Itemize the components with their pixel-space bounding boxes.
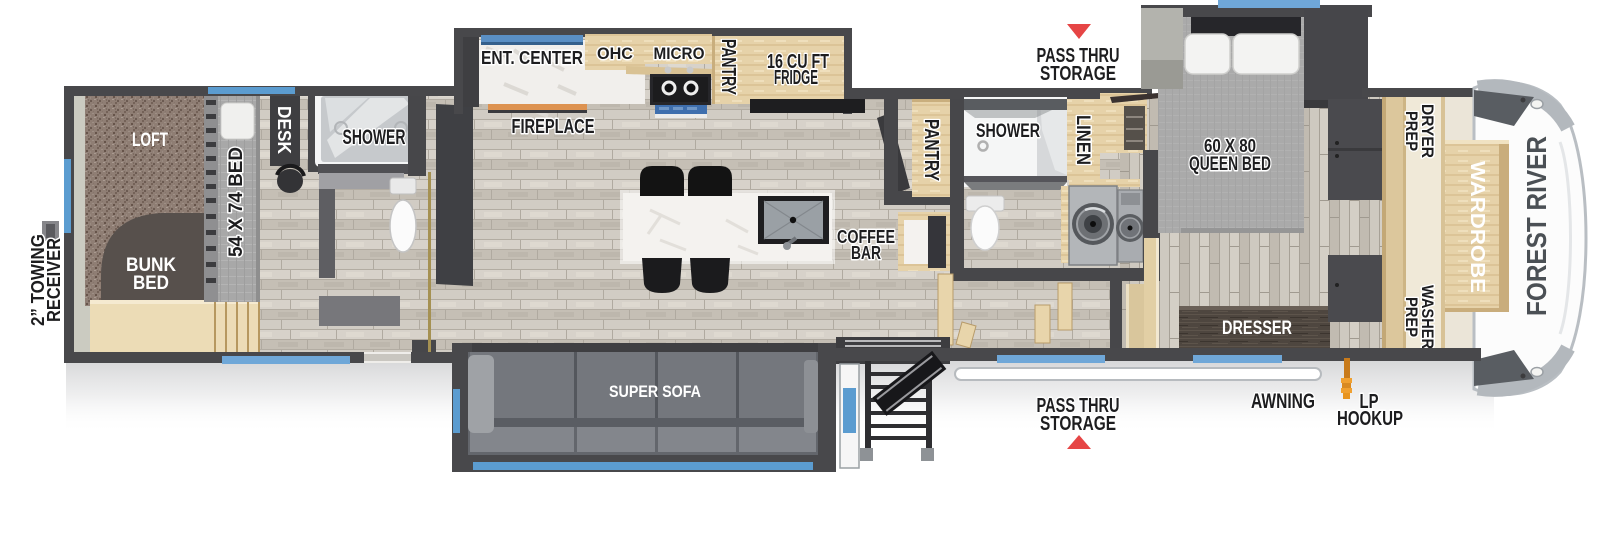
svg-text:PANTRY: PANTRY xyxy=(717,39,739,95)
svg-text:MICRO: MICRO xyxy=(654,44,705,63)
svg-text:QUEEN BED: QUEEN BED xyxy=(1189,154,1271,175)
svg-text:AWNING: AWNING xyxy=(1251,390,1315,413)
svg-text:60 X 80: 60 X 80 xyxy=(1204,136,1256,156)
svg-text:WARDROBE: WARDROBE xyxy=(1466,161,1488,293)
svg-text:BED: BED xyxy=(133,273,169,294)
svg-text:LOFT: LOFT xyxy=(132,130,168,151)
svg-text:DRESSER: DRESSER xyxy=(1222,318,1292,339)
svg-text:STORAGE: STORAGE xyxy=(1040,63,1116,85)
svg-text:PANTRY: PANTRY xyxy=(920,119,942,182)
svg-text:ENT. CENTER: ENT. CENTER xyxy=(481,48,583,68)
svg-text:SUPER SOFA: SUPER SOFA xyxy=(609,382,701,401)
svg-text:PREP: PREP xyxy=(1402,297,1421,337)
svg-text:DESK: DESK xyxy=(274,106,294,154)
svg-text:LINEN: LINEN xyxy=(1072,115,1093,165)
svg-text:SHOWER: SHOWER xyxy=(976,121,1040,142)
svg-text:STORAGE: STORAGE xyxy=(1040,413,1116,435)
svg-text:FIREPLACE: FIREPLACE xyxy=(512,116,595,138)
svg-text:FRIDGE: FRIDGE xyxy=(774,67,818,89)
svg-text:FOREST RIVER: FOREST RIVER xyxy=(1521,136,1552,316)
svg-text:HOOKUP: HOOKUP xyxy=(1337,408,1403,430)
svg-text:RECEIVER: RECEIVER xyxy=(44,238,64,322)
svg-text:SHOWER: SHOWER xyxy=(343,126,406,149)
svg-text:54 X 74 BED: 54 X 74 BED xyxy=(226,147,247,257)
svg-text:PREP: PREP xyxy=(1402,111,1421,151)
svg-text:BAR: BAR xyxy=(851,243,881,263)
svg-text:OHC: OHC xyxy=(597,44,633,63)
